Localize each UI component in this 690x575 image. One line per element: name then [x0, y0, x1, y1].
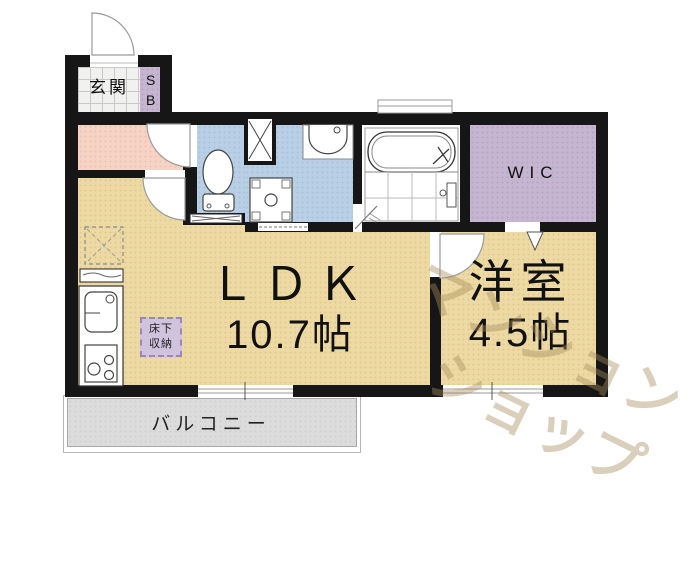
- kitchen-sink-icon: [85, 292, 117, 332]
- western-room-size: 4.5帖: [443, 312, 598, 354]
- bath-window: [378, 100, 452, 113]
- wic-label: WIC: [495, 164, 571, 182]
- toilet-icon: [203, 150, 234, 211]
- kitchen-icon: [79, 286, 123, 386]
- wic-door-wedge: [527, 232, 543, 250]
- western-room-name: 洋室: [443, 258, 598, 306]
- toilet-louver-door: [190, 214, 242, 223]
- washroom-sliding-door: [258, 223, 308, 231]
- balcony-label: バルコニー: [67, 409, 355, 436]
- pipe-space-icon: [246, 117, 274, 163]
- refrigerator-space-icon: [85, 227, 123, 264]
- washbasin-icon: [303, 125, 353, 159]
- floor-plan: 玄関 SB WIC ＬＤＫ 10.7帖 洋室 4.5帖 床下 収納 バルコニー …: [0, 0, 690, 575]
- ldk-window: [198, 382, 293, 400]
- hall-door-arc: [143, 178, 185, 220]
- ldk-name: ＬＤＫ: [140, 260, 440, 308]
- ldk-size: 10.7帖: [140, 314, 440, 356]
- entrance-door-arc: [90, 13, 138, 63]
- western-window: [443, 382, 543, 400]
- shoe-box-label: SB: [143, 71, 158, 113]
- toilet-door-arc: [147, 124, 190, 167]
- counter-hatch: [80, 269, 123, 282]
- genkan-label: 玄関: [80, 79, 138, 97]
- washer-pan-icon: [250, 178, 292, 222]
- bathroom-unit: [365, 128, 458, 222]
